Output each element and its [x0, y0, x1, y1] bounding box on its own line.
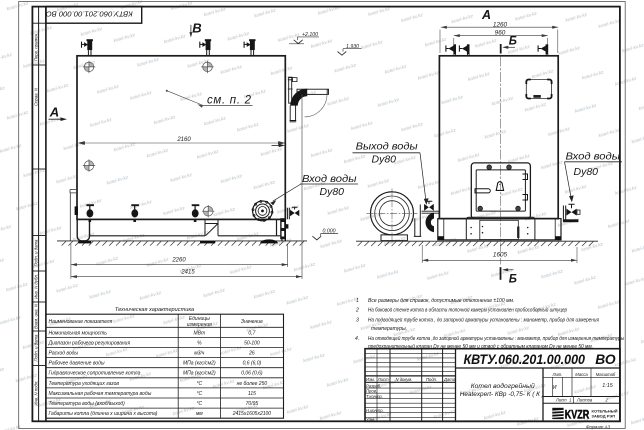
- svg-text:Листов: Листов: [576, 398, 593, 403]
- svg-text:Лист: Лист: [377, 377, 389, 382]
- svg-text:Подп. и дата: Подп. и дата: [33, 239, 38, 267]
- svg-text:0,6 (6,0): 0,6 (6,0): [243, 361, 262, 367]
- svg-text:Вход воды: Вход воды: [302, 173, 357, 185]
- svg-text:Dy80: Dy80: [320, 186, 345, 198]
- svg-text:2260: 2260: [171, 258, 186, 264]
- svg-text:Heatexpert- КВр -0,75- К ( К ): Heatexpert- КВр -0,75- К ( К ): [460, 391, 544, 398]
- svg-text:МПа (кгс/см2): МПа (кгс/см2): [183, 371, 216, 377]
- svg-text:В: В: [192, 20, 201, 35]
- svg-text:°С: °С: [196, 381, 202, 387]
- svg-text:Н.контр.: Н.контр.: [366, 408, 384, 413]
- svg-text:см. п. 2: см. п. 2: [207, 95, 252, 107]
- svg-text:мм: мм: [196, 411, 203, 417]
- svg-text:Температура воды (вход/выход): Температура воды (вход/выход): [49, 401, 126, 407]
- svg-text:Максимальная рабочая температу: Максимальная рабочая температура воды: [49, 391, 152, 397]
- svg-text:Формат А3: Формат А3: [586, 425, 611, 430]
- svg-text:Лист: Лист: [555, 398, 567, 403]
- svg-text:70/95: 70/95: [246, 401, 259, 407]
- svg-text:Т.контр.: Т.контр.: [366, 394, 383, 399]
- svg-text:Масштаб: Масштаб: [596, 372, 616, 377]
- svg-text:2: 2: [355, 308, 359, 314]
- svg-text:Дата: Дата: [443, 377, 456, 382]
- svg-text:1605: 1605: [493, 252, 508, 259]
- svg-text:50-100: 50-100: [244, 340, 260, 346]
- svg-text:ВО: ВО: [595, 352, 616, 367]
- svg-text:0,06 (0,6): 0,06 (0,6): [241, 371, 263, 377]
- svg-text:960: 960: [495, 30, 506, 37]
- svg-text:Инв. N дубл.: Инв. N дубл.: [33, 274, 38, 299]
- svg-text:2160: 2160: [176, 137, 191, 143]
- svg-text:Рабочее давление воды: Рабочее давление воды: [49, 361, 105, 367]
- svg-text:115: 115: [248, 391, 256, 397]
- svg-text:На боковой стенке котла в обла: На боковой стенке котла в области топочн…: [368, 307, 567, 314]
- svg-text:А: А: [481, 8, 491, 22]
- svg-text:Б: Б: [509, 35, 517, 47]
- svg-text:Расход воды: Расход воды: [49, 351, 79, 357]
- svg-text:На подводящей трубе котла ,: На подводящей трубе котла , до запорной …: [368, 316, 599, 323]
- svg-text:Габариты котла (длинна х ширин: Габариты котла (длинна х ширина х высота…: [49, 411, 158, 417]
- svg-text:м3/ч: м3/ч: [194, 351, 205, 357]
- svg-text:Пров.: Пров.: [366, 389, 377, 394]
- svg-text:На отводящей трубе котла ,до з: На отводящей трубе котла ,до запорной ар…: [368, 335, 624, 342]
- svg-text:Справ. N: Справ. N: [33, 87, 38, 106]
- svg-text:КВТУ.060.201.00.000 ВО: КВТУ.060.201.00.000 ВО: [46, 9, 133, 18]
- svg-text:4.: 4.: [355, 336, 359, 342]
- svg-text:Dy80: Dy80: [372, 153, 397, 165]
- svg-text:°С: °С: [196, 401, 202, 407]
- svg-text:1260: 1260: [493, 21, 508, 28]
- svg-text:0,7: 0,7: [248, 330, 255, 336]
- svg-text:температуры.: температуры.: [371, 326, 407, 332]
- svg-text:2415х1605х2100: 2415х1605х2100: [232, 411, 272, 417]
- svg-text:не более 250: не более 250: [237, 381, 268, 387]
- svg-text:1:15: 1:15: [602, 383, 613, 389]
- svg-text:KVZR: KVZR: [565, 408, 590, 421]
- svg-text:Б: Б: [509, 273, 517, 285]
- svg-text:ЗАВОД РЭП: ЗАВОД РЭП: [592, 414, 616, 419]
- svg-text:Гидравлическое сопротивление к: Гидравлическое сопротивление котла: [49, 371, 141, 377]
- svg-text:Номинальная мощность: Номинальная мощность: [49, 330, 108, 336]
- svg-text:1: 1: [569, 398, 571, 403]
- svg-text:МВт: МВт: [193, 330, 205, 336]
- svg-text:2415: 2415: [180, 270, 195, 276]
- svg-text:Диапазон рабочего регулировани: Диапазон рабочего регулирования: [48, 340, 131, 346]
- svg-text:Значение: Значение: [241, 319, 263, 325]
- svg-text:°С: °С: [196, 391, 202, 397]
- svg-text:измерения: измерения: [187, 322, 212, 328]
- svg-text:Перв. примен.: Перв. примен.: [33, 33, 38, 62]
- svg-text:1: 1: [356, 298, 359, 304]
- svg-text:Dy80: Dy80: [574, 166, 599, 178]
- svg-text:%: %: [197, 340, 202, 346]
- svg-text:Наименование показателя: Наименование показателя: [49, 319, 113, 325]
- svg-text:Утв.: Утв.: [366, 417, 376, 422]
- svg-text:Инв. N подл.: Инв. N подл.: [33, 380, 38, 405]
- svg-text:3: 3: [356, 317, 359, 323]
- svg-text:Все размеры для справок, допус: Все размеры для справок, допустимые откл…: [368, 298, 514, 304]
- svg-text:МПа (кгс/см2): МПа (кгс/см2): [183, 361, 216, 367]
- svg-text:Взам. инв. N: Взам. инв. N: [33, 303, 38, 329]
- svg-text:А: А: [49, 104, 59, 119]
- svg-text:Масса: Масса: [575, 372, 588, 377]
- svg-text:Выход воды: Выход воды: [356, 141, 418, 153]
- svg-text:Вход воды: Вход воды: [566, 151, 621, 163]
- svg-text:Техническая характеристика: Техническая характеристика: [115, 307, 194, 313]
- svg-text:Подп. и дата: Подп. и дата: [33, 334, 38, 362]
- svg-text:26: 26: [248, 351, 255, 357]
- svg-text:Подп.: Подп.: [426, 377, 437, 382]
- svg-text:Изм.: Изм.: [366, 377, 375, 382]
- svg-text:Котел водогрейный: Котел водогрейный: [471, 382, 535, 390]
- svg-text:N докум.: N докум.: [396, 377, 413, 382]
- svg-text:КВТУ.060.201.00.000: КВТУ.060.201.00.000: [464, 352, 586, 367]
- svg-text:Лит.: Лит.: [552, 372, 563, 377]
- svg-text:Температура уходящих газов: Температура уходящих газов: [49, 381, 120, 387]
